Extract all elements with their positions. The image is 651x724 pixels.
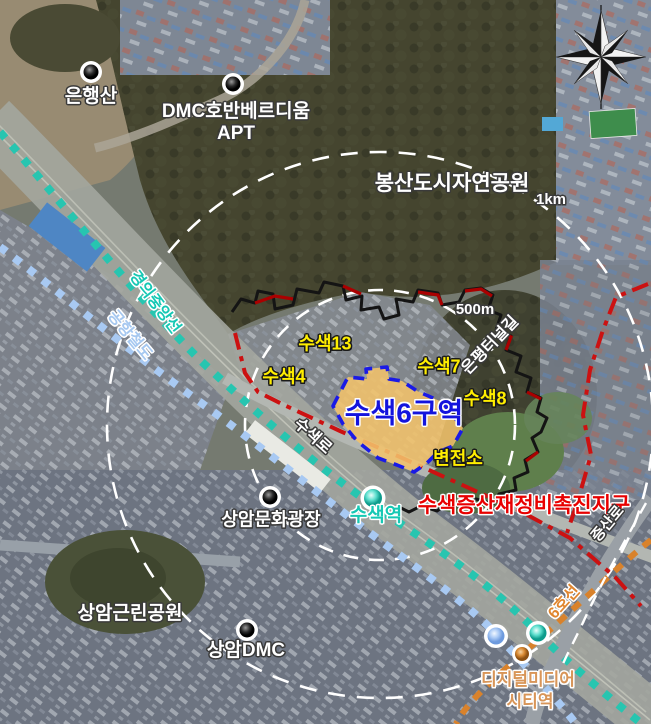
station-marker-dmc-line6 [512,644,532,664]
satellite-map [0,0,651,724]
poi-marker-sangam-dmc [236,619,258,641]
station-marker-susaek [361,486,386,511]
poi-marker-sangam-plaza [259,486,281,508]
satellite-imagery [0,0,651,724]
map-figure: 은행산 DMC호반베르디움 APT 봉산도시자연공원 1km 500m 수색13… [0,0,651,724]
poi-marker-eunhaengsan [80,61,102,83]
station-marker-dmc-gyeongui [526,621,550,645]
poi-marker-dmc-apt [222,73,244,95]
station-marker-dmc-airport [484,624,508,648]
